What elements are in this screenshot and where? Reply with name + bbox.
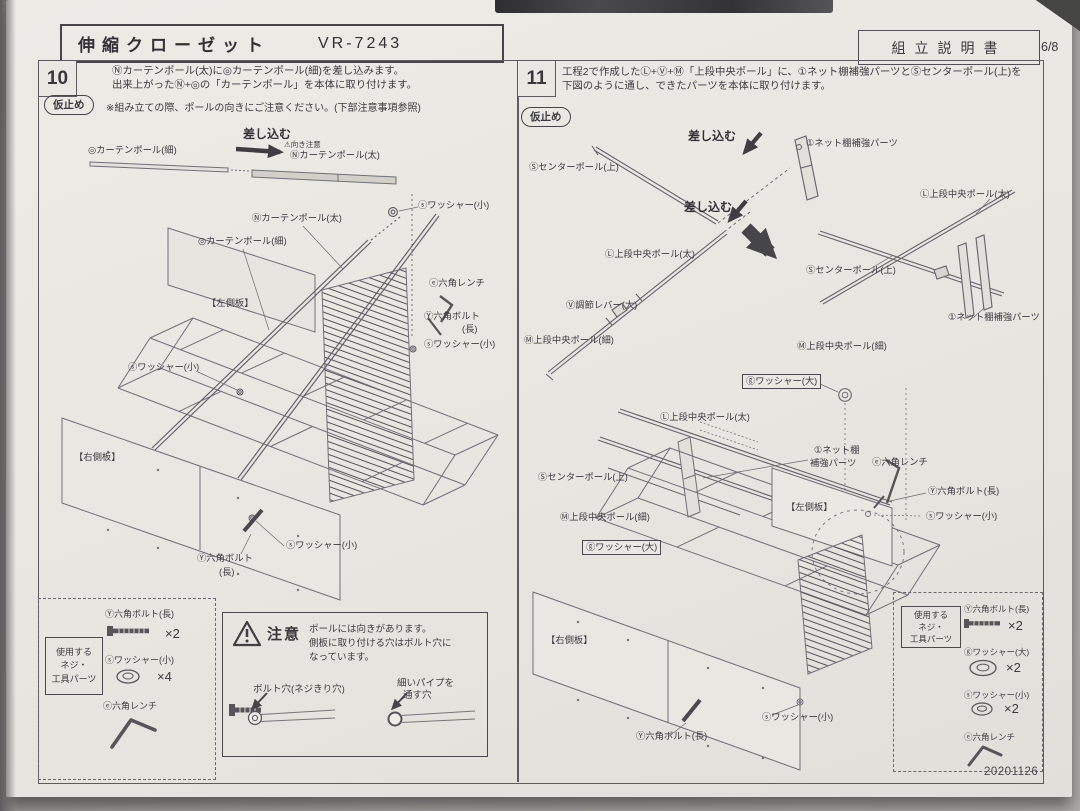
center-pole-upper <box>596 147 718 221</box>
part-name: Ⓨ六角ボルト(長) <box>105 607 174 620</box>
bolt-icon <box>964 618 1006 629</box>
net-shelf-hatch <box>798 535 872 674</box>
part-name: ⓔ六角レンチ <box>103 699 157 712</box>
page-edge-shadow <box>0 0 16 811</box>
parts-box-step11: 使用する ネジ・ 工具パーツ Ⓨ六角ボルト(長) ×2 ⓖワッシャー(大) ×2… <box>893 592 1043 772</box>
page-number: 6/8 <box>1041 40 1058 54</box>
allen-key-drawing <box>886 460 899 503</box>
parts-title-line: ネジ・ <box>918 621 944 633</box>
caution-diagram <box>223 691 487 753</box>
washer-icon <box>968 658 998 678</box>
instruction-line: Ⓝカーテンポール(太)に◎カーテンポール(細)を差し込みます。 <box>112 65 417 79</box>
step-number-text: 10 <box>47 68 68 90</box>
part-name: ⓔ六角レンチ <box>964 731 1015 743</box>
lower-closet-frame <box>533 384 940 770</box>
direction-arrow <box>746 228 770 252</box>
doc-title: 組立説明書 <box>892 38 1007 58</box>
pole-insertion-diagram <box>90 149 396 184</box>
step-10-instructions: Ⓝカーテンポール(太)に◎カーテンポール(細)を差し込みます。 出来上がったⓃ+… <box>112 65 417 94</box>
part-qty: ×2 <box>1006 660 1021 675</box>
date-code: 20201126 <box>984 766 1038 778</box>
part-qty: ×4 <box>157 669 172 684</box>
part-name: ⓢワッシャー(小) <box>105 653 174 666</box>
caution-text: ポールには向きがあります。 <box>309 621 432 635</box>
parts-title-line: 工具パーツ <box>52 673 97 687</box>
upper-center-pole <box>551 234 727 374</box>
warning-icon <box>232 620 262 647</box>
assembly-manual-photo: 伸縮クローゼット VR-7243 組立説明書 6/8 10 Ⓝカーテンポール(太… <box>0 0 1080 811</box>
parts-box-title: 使用する ネジ・ 工具パーツ <box>901 606 961 648</box>
parts-title-line: 使用する <box>914 609 948 621</box>
right-side-panel <box>533 592 800 770</box>
bolt-icon <box>107 625 157 637</box>
washer-icon <box>970 701 994 717</box>
allen-key-drawing <box>440 296 452 322</box>
part-name: Ⓨ六角ボルト(長) <box>964 603 1029 615</box>
net-shelf-brace <box>795 136 818 200</box>
parts-box-step10: 使用する ネジ・ 工具パーツ Ⓨ六角ボルト(長) ×2 ⓢワッシャー(小) ×4… <box>38 598 216 780</box>
caution-box: 注意 ポールには向きがあります。 側板に取り付ける穴はボルト穴に なっています。… <box>222 612 488 757</box>
parts-title-line: ネジ・ <box>60 659 87 673</box>
caution-title: 注意 <box>267 623 301 644</box>
page-title: 伸縮クローゼット <box>78 31 270 56</box>
tack-seal-badge: 仮止め <box>44 95 94 115</box>
allen-key-icon <box>107 713 161 753</box>
instruction-line: 下図のように通し、できたパーツを本体に取り付けます。 <box>562 80 1022 94</box>
step-number-text: 11 <box>526 68 546 90</box>
closet-frame <box>62 228 498 600</box>
instruction-line: 工程2で作成したⓁ+Ⓥ+Ⓜ「上段中央ポール」に、①ネット棚補強パーツとⓈセンター… <box>562 66 1022 80</box>
right-side-panel <box>62 418 340 600</box>
step10-diagram <box>38 122 518 600</box>
instruction-line: 出来上がったⓃ+◎の「カーテンポール」を本体に取り付けます。 <box>112 79 417 93</box>
part-qty: ×2 <box>1008 618 1023 633</box>
step-10-number: 10 <box>38 60 77 97</box>
top-pole-assembly <box>546 133 1015 380</box>
parts-title-line: 工具パーツ <box>910 633 952 645</box>
step-11-instructions: 工程2で作成したⓁ+Ⓥ+Ⓜ「上段中央ポール」に、①ネット棚補強パーツとⓈセンター… <box>562 66 1022 95</box>
title-box: 伸縮クローゼット VR-7243 <box>60 24 504 63</box>
part-qty: ×2 <box>1004 701 1019 716</box>
parts-box-title: 使用する ネジ・ 工具パーツ <box>45 637 103 695</box>
caution-text: なっています。 <box>309 649 374 663</box>
step-11-number: 11 <box>517 60 556 97</box>
part-qty: ×2 <box>165 626 180 641</box>
model-number: VR-7243 <box>318 35 402 53</box>
caution-text: 側板に取り付ける穴はボルト穴に <box>309 635 452 649</box>
part-name: ⓢワッシャー(小) <box>964 689 1029 701</box>
parts-title-line: 使用する <box>56 646 92 660</box>
washer-icon <box>115 668 141 685</box>
part-name: ⓖワッシャー(大) <box>964 646 1029 658</box>
step-10-note: ※組み立ての際、ポールの向きにご注意ください。(下部注意事項参照) <box>106 99 421 114</box>
background-object <box>495 0 833 13</box>
